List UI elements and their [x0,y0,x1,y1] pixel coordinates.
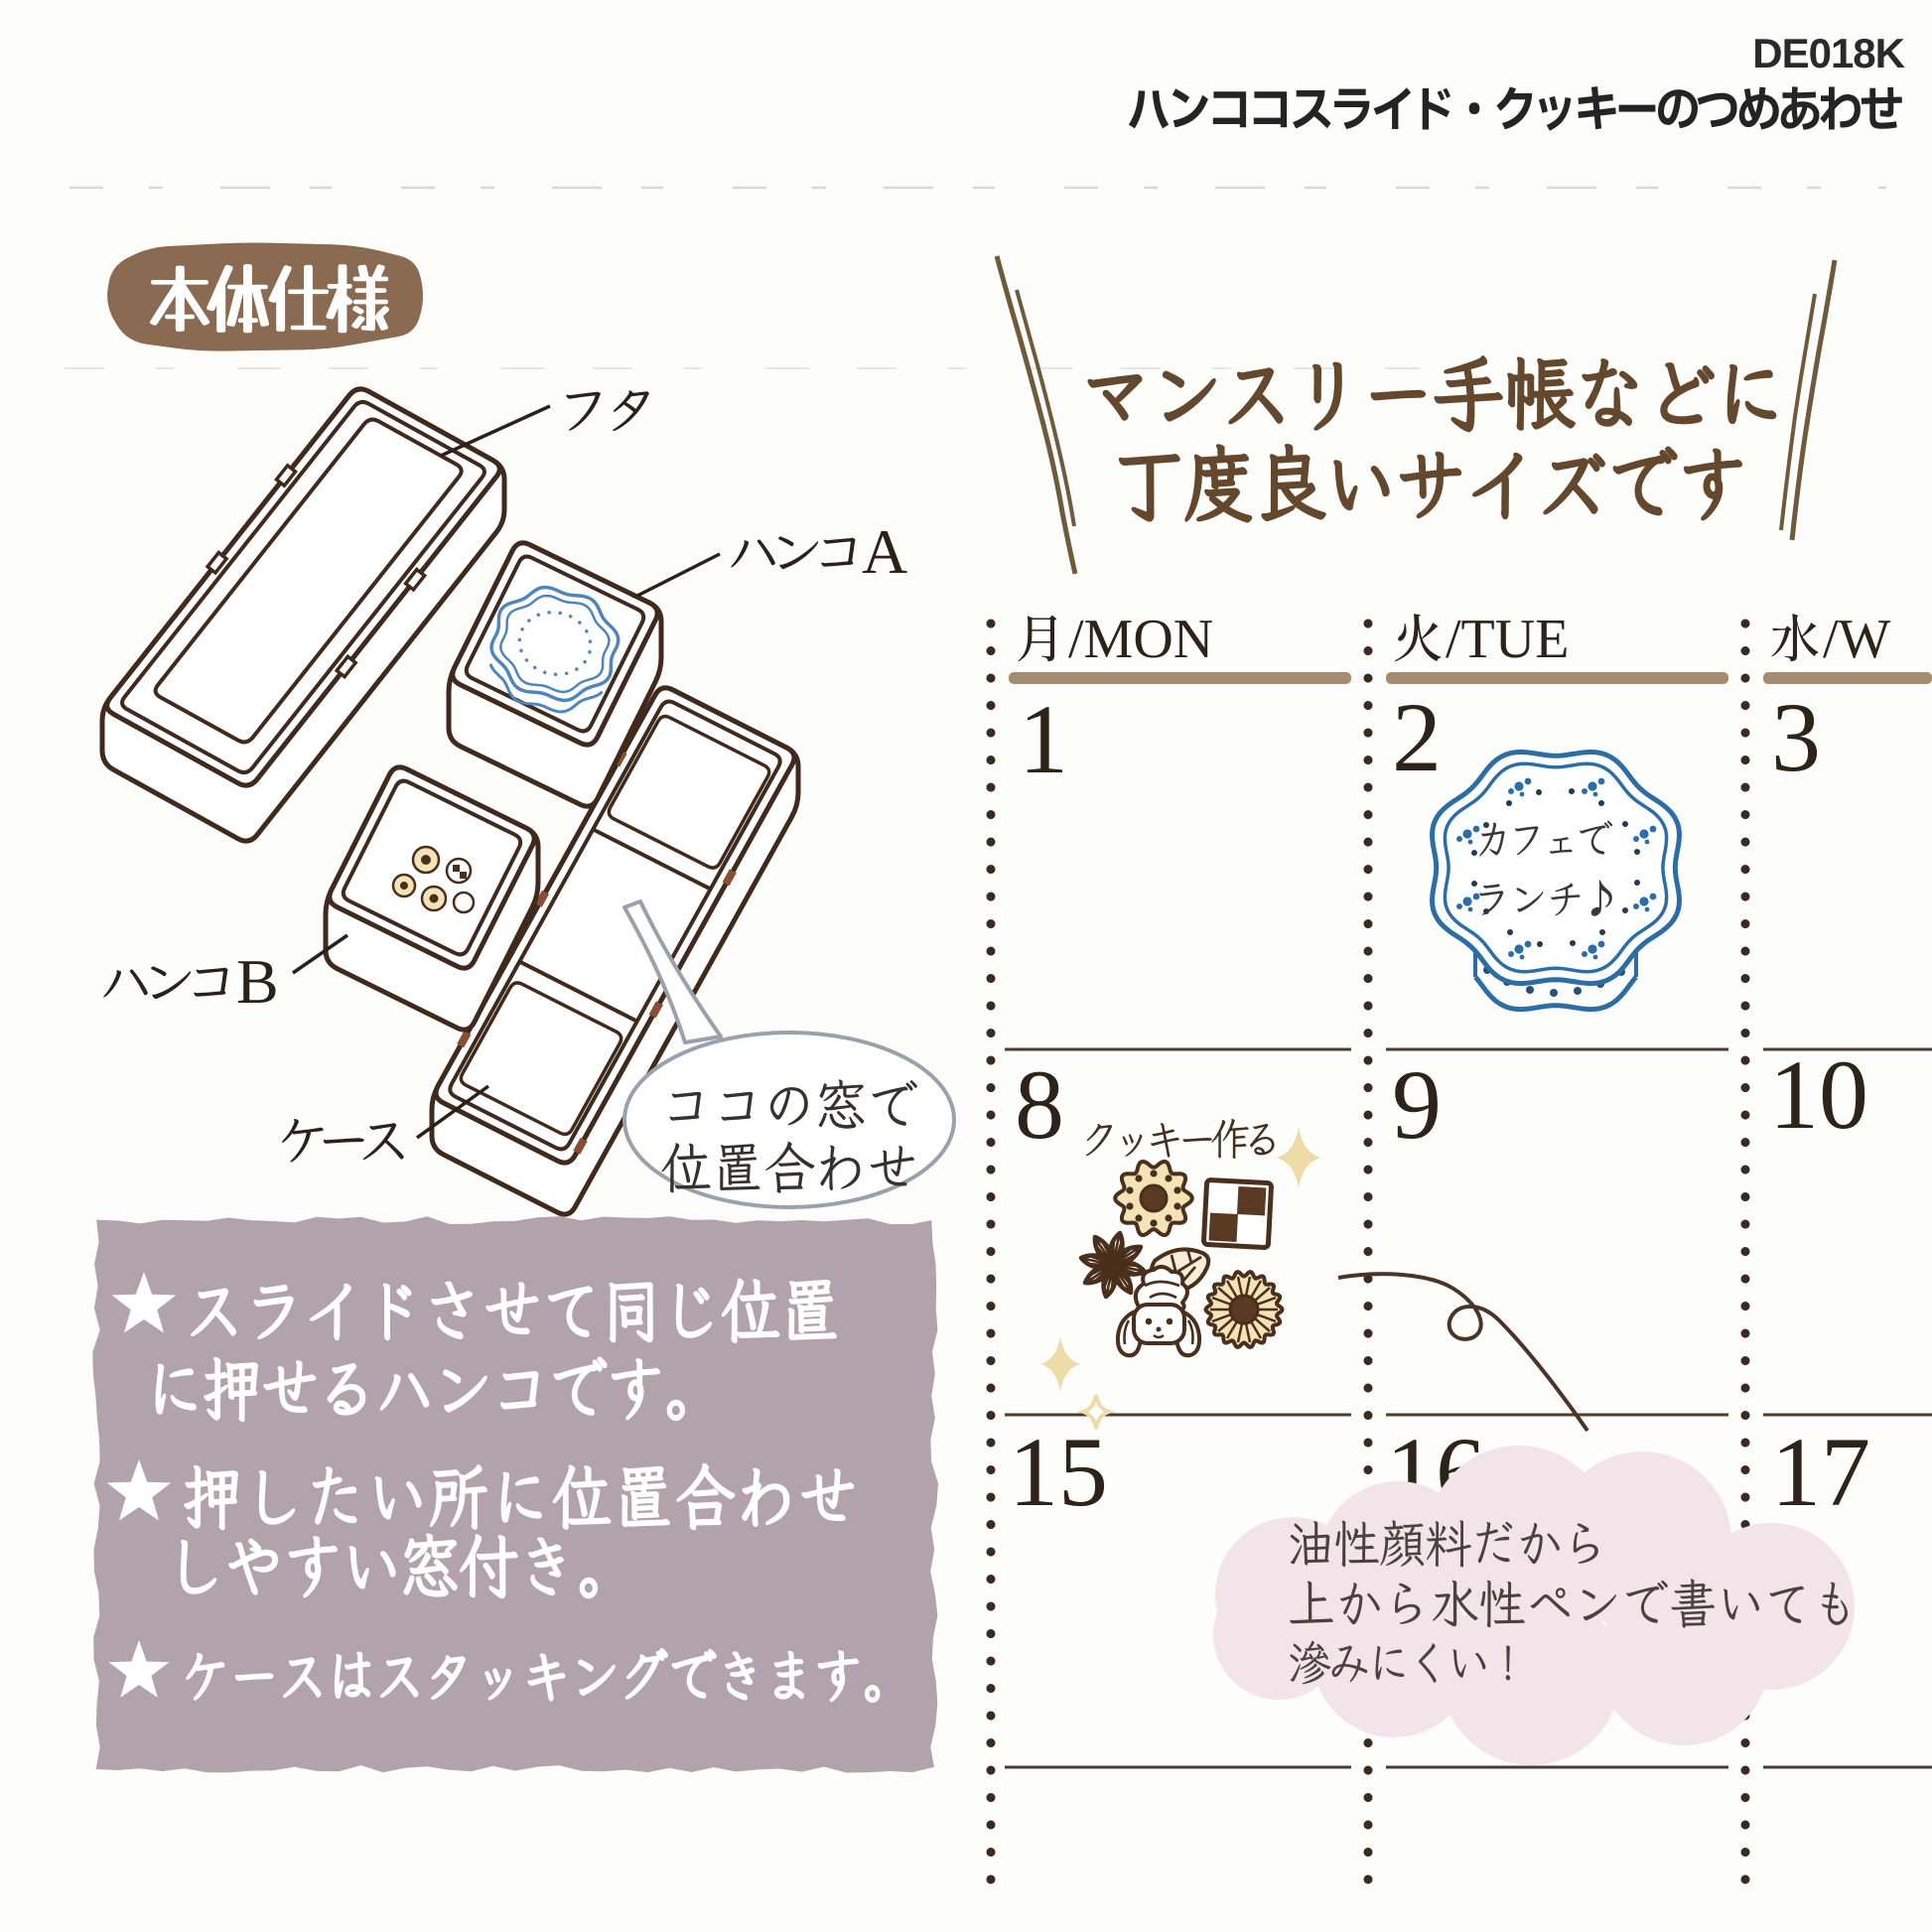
svg-text:B: B [236,946,279,1017]
svg-text:/MON: /MON [1068,609,1213,670]
svg-text:1: 1 [1019,684,1068,794]
svg-text:A: A [862,516,907,587]
svg-text:15: 15 [1009,1417,1108,1527]
svg-text:8: 8 [1015,1049,1064,1160]
svg-text:2: 2 [1392,682,1442,792]
svg-text:/TUE: /TUE [1446,609,1569,670]
svg-text:17: 17 [1771,1417,1870,1527]
svg-text:DE018K: DE018K [1752,30,1904,76]
svg-text:10: 10 [1769,1039,1868,1150]
svg-text:9: 9 [1392,1049,1442,1160]
svg-text:3: 3 [1771,682,1821,792]
svg-text:/W: /W [1823,609,1891,670]
